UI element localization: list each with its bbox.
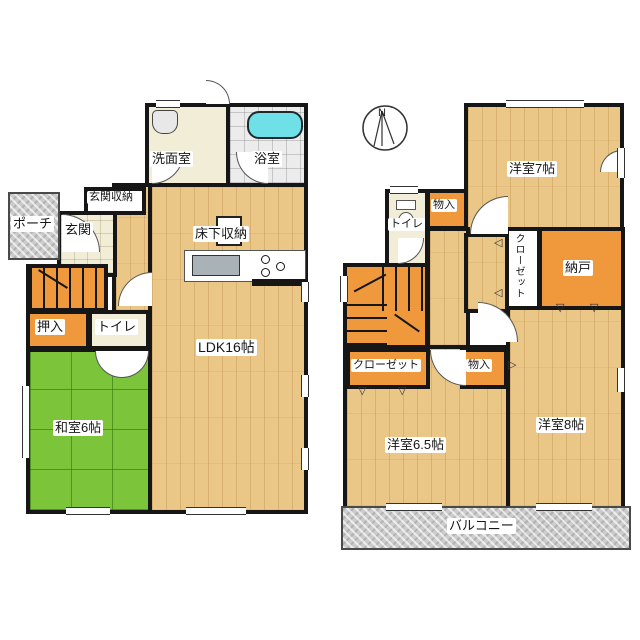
- bathroom-label: 浴室: [252, 151, 282, 167]
- balcony-label: バルコニー: [447, 518, 516, 534]
- window: [22, 386, 30, 458]
- compass-icon: N: [360, 102, 412, 154]
- entrance-storage-label: 玄関収納: [87, 191, 135, 204]
- bedroom7-label: 洋室7帖: [507, 161, 557, 177]
- washbasin-icon: [152, 110, 178, 134]
- window: [340, 276, 348, 302]
- closet-lower-label: クローゼット: [351, 359, 421, 372]
- window: [617, 368, 625, 392]
- door-triangle-icon: ◁: [494, 238, 502, 249]
- door-triangle-icon: ◁: [494, 288, 502, 299]
- door-triangle-icon: ▽: [590, 303, 598, 314]
- stove-burner-icon: [276, 262, 285, 271]
- nando-label: 納戸: [563, 260, 593, 276]
- window: [66, 507, 110, 515]
- washitsu-label: 和室6帖: [53, 420, 103, 436]
- stove-burner-icon: [261, 268, 270, 277]
- kitchen-sink-icon: [192, 255, 240, 276]
- window: [536, 503, 592, 511]
- kitchen-half-wall: [252, 279, 308, 286]
- window: [301, 375, 309, 397]
- window: [156, 100, 180, 108]
- stove-burner-icon: [261, 255, 270, 264]
- stairs-steps: [347, 300, 387, 345]
- stairs-steps: [382, 267, 425, 311]
- window: [617, 148, 625, 178]
- compass-north-label: N: [378, 107, 386, 119]
- door-triangle-icon: ▽: [358, 386, 366, 397]
- window: [506, 100, 584, 108]
- bedroom65-label: 洋室6.5帖: [385, 437, 446, 453]
- bedroom8-label: 洋室8帖: [536, 417, 586, 433]
- oshiire-label: 押入: [35, 319, 65, 335]
- floor-plan-canvas: 洗面室 浴室 玄関収納 ポーチ 玄関 床下収納 押入 トイレ 和室6帖 LDK1…: [0, 0, 640, 640]
- storage-upper-label: 物入: [431, 199, 457, 212]
- ldk-label: LDK16帖: [196, 339, 257, 356]
- toilet-2f-label: トイレ: [388, 218, 425, 231]
- door-arc: [206, 80, 230, 104]
- door-triangle-icon: ▽: [556, 303, 564, 314]
- toilet-tank-icon: [396, 200, 416, 210]
- washroom-label: 洗面室: [150, 151, 193, 167]
- window: [301, 282, 309, 302]
- door-triangle-icon: ▽: [398, 386, 406, 397]
- window: [390, 186, 418, 194]
- underfloor-storage-label: 床下収納: [193, 226, 249, 242]
- room-bedroom8: [506, 306, 625, 510]
- bathtub-icon: [247, 111, 303, 139]
- window: [301, 448, 309, 470]
- porch-label: ポーチ: [11, 216, 54, 232]
- toilet-1f-label: トイレ: [95, 319, 138, 335]
- window: [386, 503, 442, 511]
- closet-vertical-label: クローゼット: [512, 231, 524, 301]
- entrance-label: 玄関: [63, 222, 93, 238]
- storage-lower-label: 物入: [466, 359, 492, 372]
- door-triangle-icon: ▷: [508, 360, 516, 371]
- window: [186, 507, 246, 515]
